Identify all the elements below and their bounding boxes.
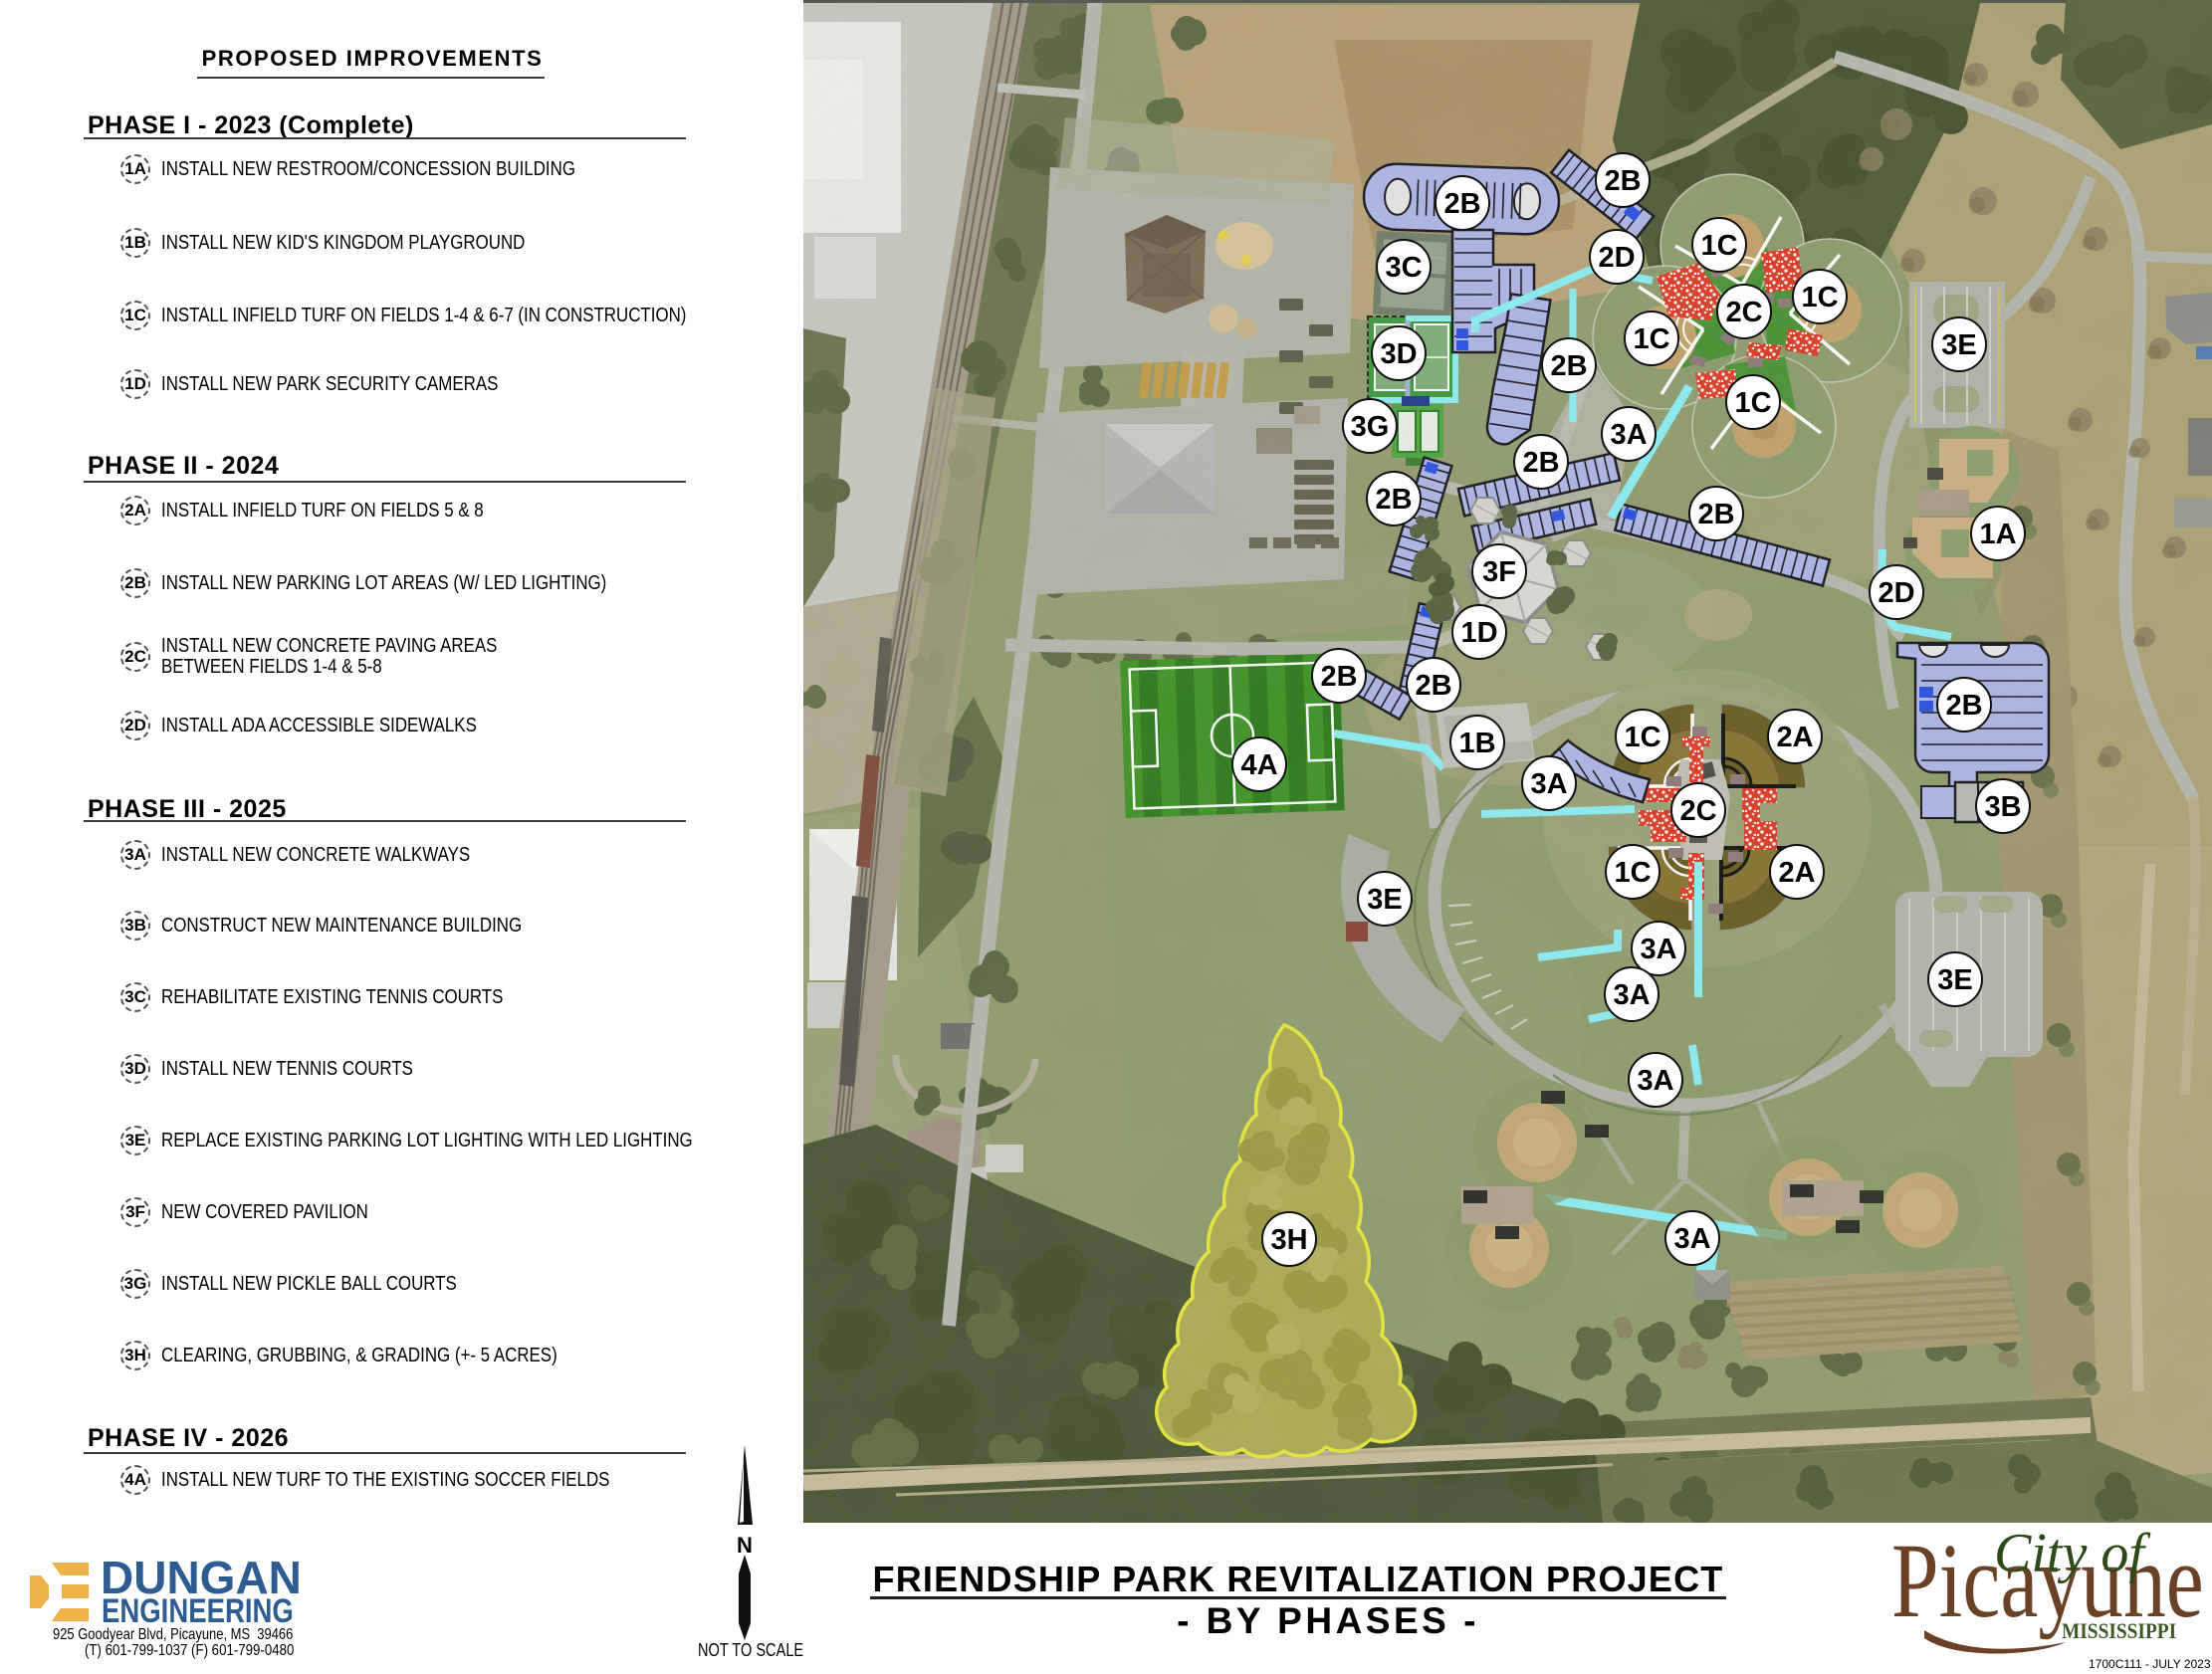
svg-text:2B: 2B [1522, 447, 1559, 479]
svg-text:1C: 1C [1614, 857, 1651, 889]
svg-text:1D: 1D [1460, 617, 1497, 649]
svg-text:2D: 2D [1878, 577, 1914, 609]
svg-text:2A: 2A [1778, 857, 1815, 889]
svg-text:2B: 2B [1604, 165, 1641, 197]
svg-text:N: N [737, 1533, 753, 1558]
svg-text:3A: 3A [1610, 419, 1647, 451]
svg-text:2C: 2C [1725, 297, 1762, 328]
svg-text:2A: 2A [1776, 722, 1813, 753]
svg-text:2B: 2B [1443, 188, 1480, 220]
svg-text:2B: 2B [1320, 661, 1357, 693]
svg-text:3F: 3F [1482, 556, 1516, 588]
svg-text:4A: 4A [1240, 749, 1277, 781]
svg-text:1C: 1C [1700, 230, 1737, 262]
svg-text:3D: 3D [1380, 338, 1417, 370]
svg-text:3E: 3E [1937, 964, 1972, 996]
svg-text:3A: 3A [1530, 768, 1567, 800]
svg-text:3E: 3E [1941, 329, 1976, 361]
svg-text:1C: 1C [1801, 282, 1838, 314]
svg-text:1C: 1C [1633, 323, 1669, 355]
svg-text:3E: 3E [1367, 884, 1402, 916]
svg-text:1A: 1A [1979, 519, 2016, 550]
svg-text:1B: 1B [1458, 728, 1495, 759]
svg-text:2B: 2B [1550, 350, 1587, 382]
svg-text:1C: 1C [1734, 387, 1771, 419]
svg-text:3A: 3A [1613, 979, 1650, 1011]
svg-text:2C: 2C [1679, 795, 1716, 827]
svg-text:2B: 2B [1697, 499, 1734, 530]
svg-text:3A: 3A [1637, 1065, 1673, 1097]
svg-text:2D: 2D [1598, 242, 1635, 274]
svg-text:3B: 3B [1984, 791, 2021, 823]
svg-text:3A: 3A [1673, 1223, 1710, 1255]
svg-text:3C: 3C [1385, 252, 1422, 284]
svg-text:3H: 3H [1270, 1224, 1307, 1256]
svg-text:3A: 3A [1640, 934, 1676, 965]
svg-text:2B: 2B [1375, 484, 1412, 516]
svg-text:3G: 3G [1351, 411, 1390, 443]
svg-text:2B: 2B [1945, 690, 1982, 722]
svg-text:1C: 1C [1624, 722, 1660, 753]
svg-text:2B: 2B [1415, 670, 1451, 702]
